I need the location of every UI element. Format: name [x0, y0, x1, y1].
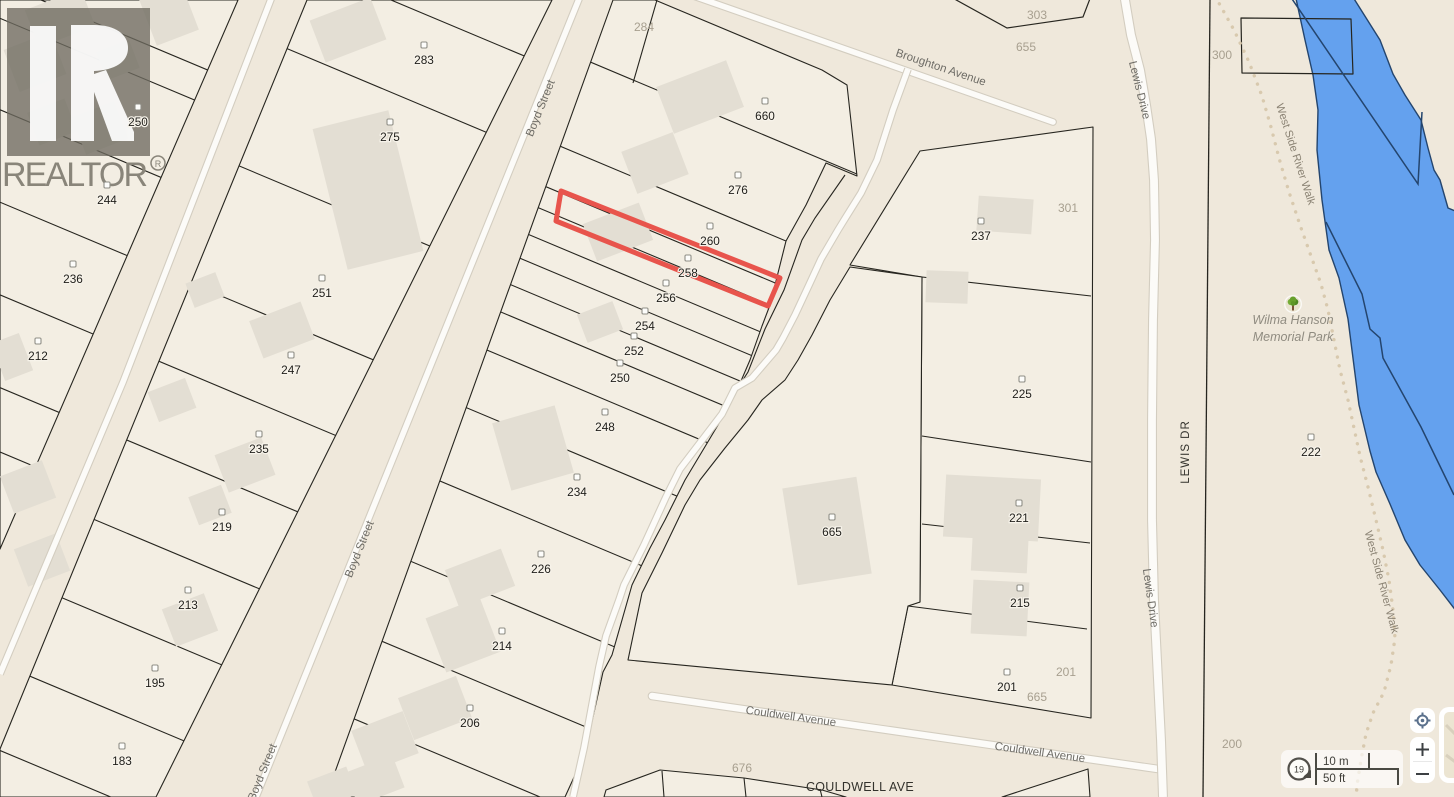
svg-text:201: 201: [1056, 665, 1076, 679]
svg-text:212: 212: [28, 349, 48, 363]
svg-text:665: 665: [822, 525, 842, 539]
svg-text:221: 221: [1009, 511, 1029, 525]
svg-text:283: 283: [414, 53, 434, 67]
svg-text:252: 252: [624, 344, 644, 358]
svg-text:248: 248: [595, 420, 615, 434]
svg-text:236: 236: [63, 272, 83, 286]
svg-text:R: R: [155, 159, 162, 169]
svg-text:Wilma Hanson: Wilma Hanson: [1252, 313, 1333, 327]
svg-text:300: 300: [1212, 48, 1232, 62]
svg-text:200: 200: [1222, 737, 1242, 751]
svg-text:250: 250: [610, 371, 630, 385]
svg-text:247: 247: [281, 363, 301, 377]
svg-text:206: 206: [460, 716, 480, 730]
svg-text:10 m: 10 m: [1323, 756, 1349, 768]
svg-text:276: 276: [728, 183, 748, 197]
svg-text:275: 275: [380, 130, 400, 144]
svg-text:655: 655: [1016, 40, 1036, 54]
svg-text:201: 201: [997, 680, 1017, 694]
svg-text:50 ft: 50 ft: [1323, 773, 1346, 785]
svg-text:183: 183: [112, 754, 132, 768]
svg-text:237: 237: [971, 229, 991, 243]
svg-text:284: 284: [634, 20, 654, 34]
svg-text:LEWIS DR: LEWIS DR: [1180, 420, 1192, 484]
svg-text:REALTOR: REALTOR: [2, 156, 150, 194]
svg-text:303: 303: [1027, 8, 1047, 22]
svg-text:234: 234: [567, 485, 587, 499]
svg-text:258: 258: [678, 266, 698, 280]
svg-text:225: 225: [1012, 387, 1032, 401]
svg-text:214: 214: [492, 639, 512, 653]
svg-text:256: 256: [656, 291, 676, 305]
svg-text:660: 660: [755, 109, 775, 123]
svg-text:COULDWELL AVE: COULDWELL AVE: [806, 780, 914, 794]
svg-text:215: 215: [1010, 596, 1030, 610]
svg-text:254: 254: [635, 319, 655, 333]
svg-text:244: 244: [97, 193, 117, 207]
svg-text:222: 222: [1301, 445, 1321, 459]
svg-text:251: 251: [312, 286, 332, 300]
svg-text:250: 250: [128, 115, 148, 129]
svg-text:219: 219: [212, 520, 232, 534]
svg-text:676: 676: [732, 761, 752, 775]
svg-text:260: 260: [700, 234, 720, 248]
svg-text:226: 226: [531, 562, 551, 576]
svg-text:665: 665: [1027, 690, 1047, 704]
svg-text:195: 195: [145, 676, 165, 690]
svg-text:213: 213: [178, 598, 198, 612]
svg-text:Memorial Park: Memorial Park: [1253, 330, 1334, 344]
svg-text:301: 301: [1058, 201, 1078, 215]
svg-text:19: 19: [1294, 765, 1304, 775]
svg-text:235: 235: [249, 442, 269, 456]
